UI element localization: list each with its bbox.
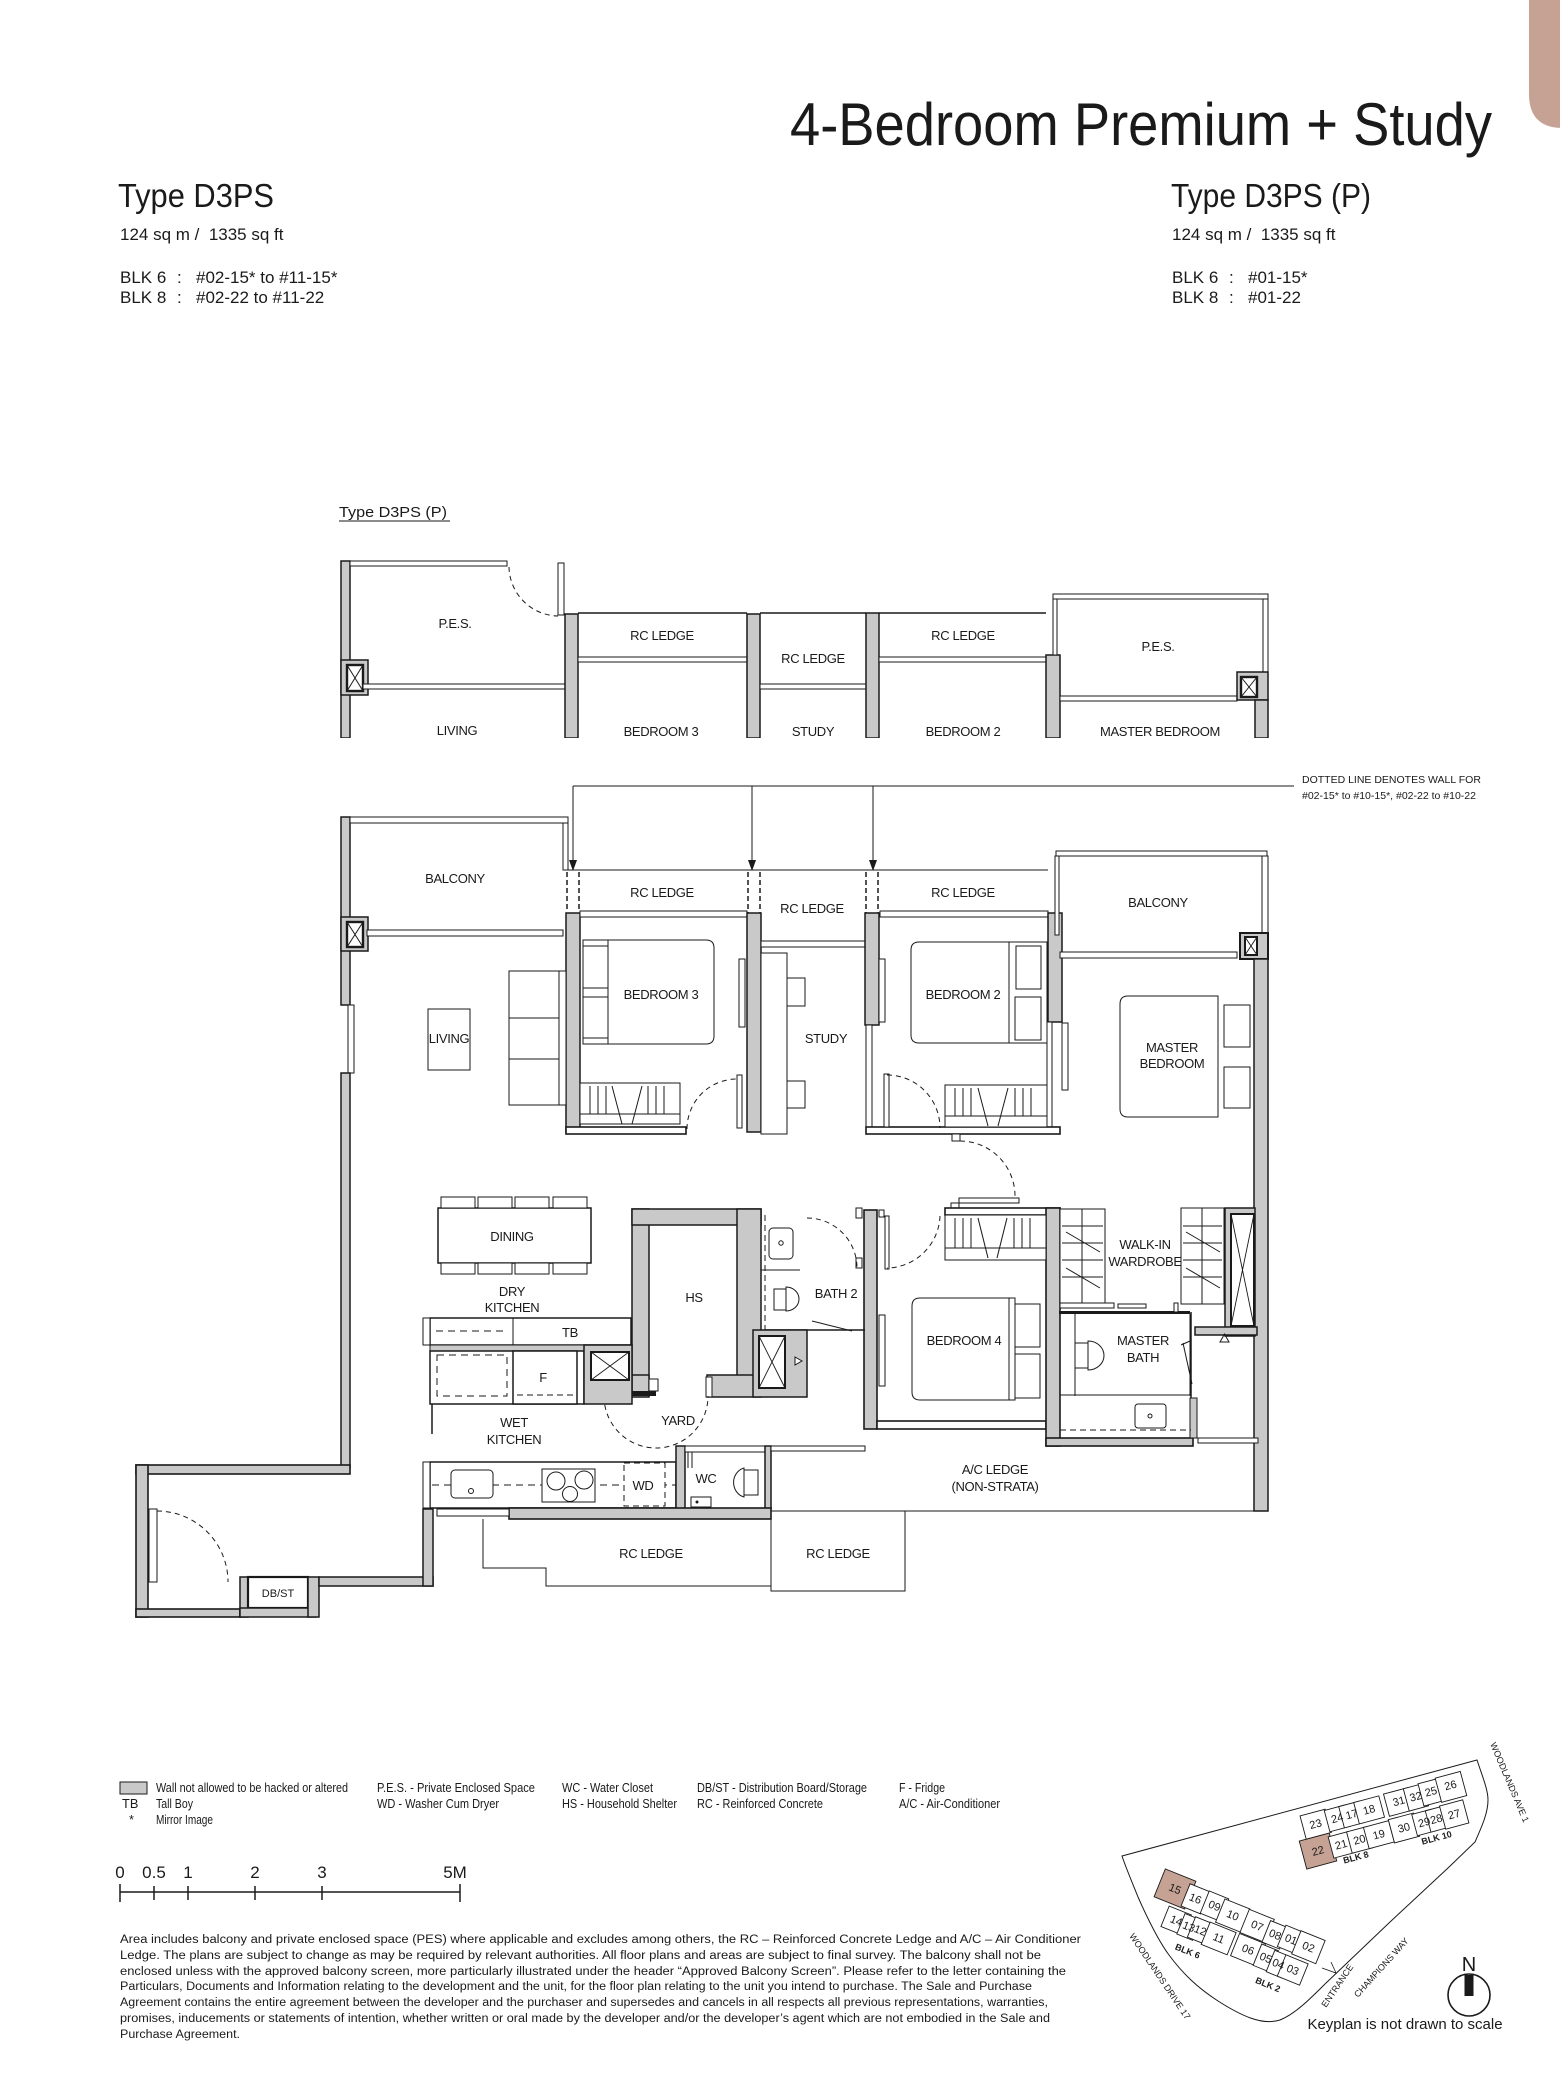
svg-text:BEDROOM 3: BEDROOM 3 bbox=[624, 987, 699, 1002]
svg-text:YARD: YARD bbox=[661, 1413, 695, 1428]
svg-text:#01-15*: #01-15* bbox=[1248, 268, 1308, 287]
svg-text:DOTTED LINE DENOTES WALL FOR: DOTTED LINE DENOTES WALL FOR bbox=[1302, 774, 1481, 786]
svg-text:WD - Washer Cum Dryer: WD - Washer Cum Dryer bbox=[377, 1796, 500, 1811]
svg-text:DINING: DINING bbox=[490, 1229, 534, 1244]
svg-text:3: 3 bbox=[317, 1863, 326, 1882]
svg-text:BEDROOM 2: BEDROOM 2 bbox=[926, 987, 1001, 1002]
svg-text:BALCONY: BALCONY bbox=[425, 871, 485, 886]
svg-text:(NON-STRATA): (NON-STRATA) bbox=[951, 1479, 1038, 1494]
svg-text:WET: WET bbox=[500, 1415, 528, 1430]
svg-text:BEDROOM 3: BEDROOM 3 bbox=[624, 724, 699, 739]
svg-text:enclosed unless with the appro: enclosed unless with the approved balcon… bbox=[120, 1966, 1066, 1978]
svg-text::: : bbox=[177, 268, 182, 287]
svg-text:DRY: DRY bbox=[499, 1284, 526, 1299]
svg-text:BATH 2: BATH 2 bbox=[815, 1286, 858, 1301]
svg-text:RC LEDGE: RC LEDGE bbox=[781, 651, 845, 666]
svg-text:RC - Reinforced Concrete: RC - Reinforced Concrete bbox=[697, 1796, 823, 1811]
svg-text:LIVING: LIVING bbox=[429, 1031, 470, 1046]
svg-text:2: 2 bbox=[250, 1863, 259, 1882]
svg-text:HS: HS bbox=[685, 1290, 703, 1305]
svg-text:KITCHEN: KITCHEN bbox=[485, 1300, 540, 1315]
svg-text:RC LEDGE: RC LEDGE bbox=[619, 1546, 683, 1561]
svg-text::: : bbox=[1229, 288, 1234, 307]
svg-text:Particulars, Documents and Inf: Particulars, Documents and Information r… bbox=[120, 1981, 1032, 1993]
svg-text:5M: 5M bbox=[443, 1863, 467, 1882]
svg-text:Keyplan is not drawn to scale: Keyplan is not drawn to scale bbox=[1307, 2016, 1502, 2033]
svg-text:BLK 8: BLK 8 bbox=[1172, 288, 1218, 307]
svg-text:A/C - Air-Conditioner: A/C - Air-Conditioner bbox=[899, 1796, 1001, 1811]
svg-text:DB/ST: DB/ST bbox=[262, 1588, 295, 1600]
svg-text:4-Bedroom Premium + Study: 4-Bedroom Premium + Study bbox=[790, 91, 1492, 158]
svg-text:TB: TB bbox=[122, 1796, 138, 1811]
svg-text:0.5: 0.5 bbox=[142, 1863, 166, 1882]
svg-text:WD: WD bbox=[633, 1478, 654, 1493]
svg-text:WC - Water Closet: WC - Water Closet bbox=[562, 1780, 653, 1795]
svg-text:RC LEDGE: RC LEDGE bbox=[630, 628, 694, 643]
svg-text:#02-22 to #11-22: #02-22 to #11-22 bbox=[196, 288, 324, 307]
svg-text::: : bbox=[177, 288, 182, 307]
svg-text:#02-15* to #10-15*, #02-22 to: #02-15* to #10-15*, #02-22 to #10-22 bbox=[1302, 790, 1476, 802]
svg-text:DB/ST - Distribution Board/Sto: DB/ST - Distribution Board/Storage bbox=[697, 1780, 867, 1795]
svg-text:Type D3PS (P): Type D3PS (P) bbox=[1171, 178, 1371, 215]
svg-text:Wall not allowed to be hacked: Wall not allowed to be hacked or altered bbox=[156, 1780, 348, 1795]
svg-text:LIVING: LIVING bbox=[437, 723, 478, 738]
svg-text:Type D3PS (P): Type D3PS (P) bbox=[339, 505, 447, 521]
svg-text:P.E.S.: P.E.S. bbox=[438, 616, 471, 631]
svg-text:TB: TB bbox=[562, 1325, 578, 1340]
svg-text:STUDY: STUDY bbox=[805, 1031, 848, 1046]
svg-text:WC: WC bbox=[696, 1471, 717, 1486]
svg-text:Area includes balcony and priv: Area includes balcony and private enclos… bbox=[120, 1934, 1081, 1946]
svg-text:1: 1 bbox=[183, 1863, 192, 1882]
svg-text:BATH: BATH bbox=[1127, 1350, 1159, 1365]
svg-text::: : bbox=[1229, 268, 1234, 287]
svg-text:Agreement contains the entire: Agreement contains the entire agreement … bbox=[120, 1997, 1048, 2009]
svg-text:Type D3PS: Type D3PS bbox=[118, 178, 274, 215]
svg-text:BALCONY: BALCONY bbox=[1128, 895, 1188, 910]
svg-text:P.E.S.: P.E.S. bbox=[1141, 639, 1174, 654]
svg-text:BLK 6: BLK 6 bbox=[1172, 268, 1218, 287]
svg-text:MASTER BEDROOM: MASTER BEDROOM bbox=[1100, 724, 1220, 739]
svg-text:124 sq m / 1335 sq ft: 124 sq m / 1335 sq ft bbox=[120, 225, 284, 244]
svg-text:BLK 8: BLK 8 bbox=[120, 288, 166, 307]
svg-text:F - Fridge: F - Fridge bbox=[899, 1780, 945, 1795]
svg-text:RC LEDGE: RC LEDGE bbox=[780, 901, 844, 916]
svg-text:WARDROBE: WARDROBE bbox=[1108, 1254, 1182, 1269]
svg-text:P.E.S. - Private Enclosed Spac: P.E.S. - Private Enclosed Space bbox=[377, 1780, 535, 1795]
svg-text:RC LEDGE: RC LEDGE bbox=[931, 885, 995, 900]
svg-text:*: * bbox=[129, 1812, 134, 1827]
svg-text:WALK-IN: WALK-IN bbox=[1119, 1237, 1170, 1252]
svg-text:BLK 6: BLK 6 bbox=[120, 268, 166, 287]
svg-text:KITCHEN: KITCHEN bbox=[487, 1432, 542, 1447]
svg-text:A/C LEDGE: A/C LEDGE bbox=[962, 1462, 1029, 1477]
svg-text:Purchase Agreement.: Purchase Agreement. bbox=[120, 2029, 240, 2041]
svg-text:RC LEDGE: RC LEDGE bbox=[931, 628, 995, 643]
svg-text:N: N bbox=[1462, 1954, 1476, 1976]
svg-text:0: 0 bbox=[115, 1863, 124, 1882]
svg-text:#01-22: #01-22 bbox=[1248, 288, 1301, 307]
svg-text:F: F bbox=[539, 1370, 547, 1385]
svg-text:BEDROOM 2: BEDROOM 2 bbox=[926, 724, 1001, 739]
svg-text:HS - Household Shelter: HS - Household Shelter bbox=[562, 1796, 678, 1811]
svg-text:124 sq m / 1335 sq ft: 124 sq m / 1335 sq ft bbox=[1172, 225, 1336, 244]
svg-text:MASTER: MASTER bbox=[1117, 1333, 1169, 1348]
svg-text:Mirror Image: Mirror Image bbox=[156, 1812, 213, 1827]
svg-text:MASTER: MASTER bbox=[1146, 1040, 1198, 1055]
svg-text:RC LEDGE: RC LEDGE bbox=[806, 1546, 870, 1561]
svg-text:RC LEDGE: RC LEDGE bbox=[630, 885, 694, 900]
svg-text:STUDY: STUDY bbox=[792, 724, 835, 739]
svg-text:Tall Boy: Tall Boy bbox=[156, 1796, 193, 1811]
svg-text:Ledge. The plans are subject t: Ledge. The plans are subject to change a… bbox=[120, 1950, 1041, 1962]
svg-text:BEDROOM 4: BEDROOM 4 bbox=[927, 1333, 1002, 1348]
svg-text:#02-15* to #11-15*: #02-15* to #11-15* bbox=[196, 268, 338, 287]
svg-text:promises, inducements or state: promises, inducements or statements of i… bbox=[120, 2013, 1050, 2025]
svg-text:BEDROOM: BEDROOM bbox=[1140, 1056, 1205, 1071]
